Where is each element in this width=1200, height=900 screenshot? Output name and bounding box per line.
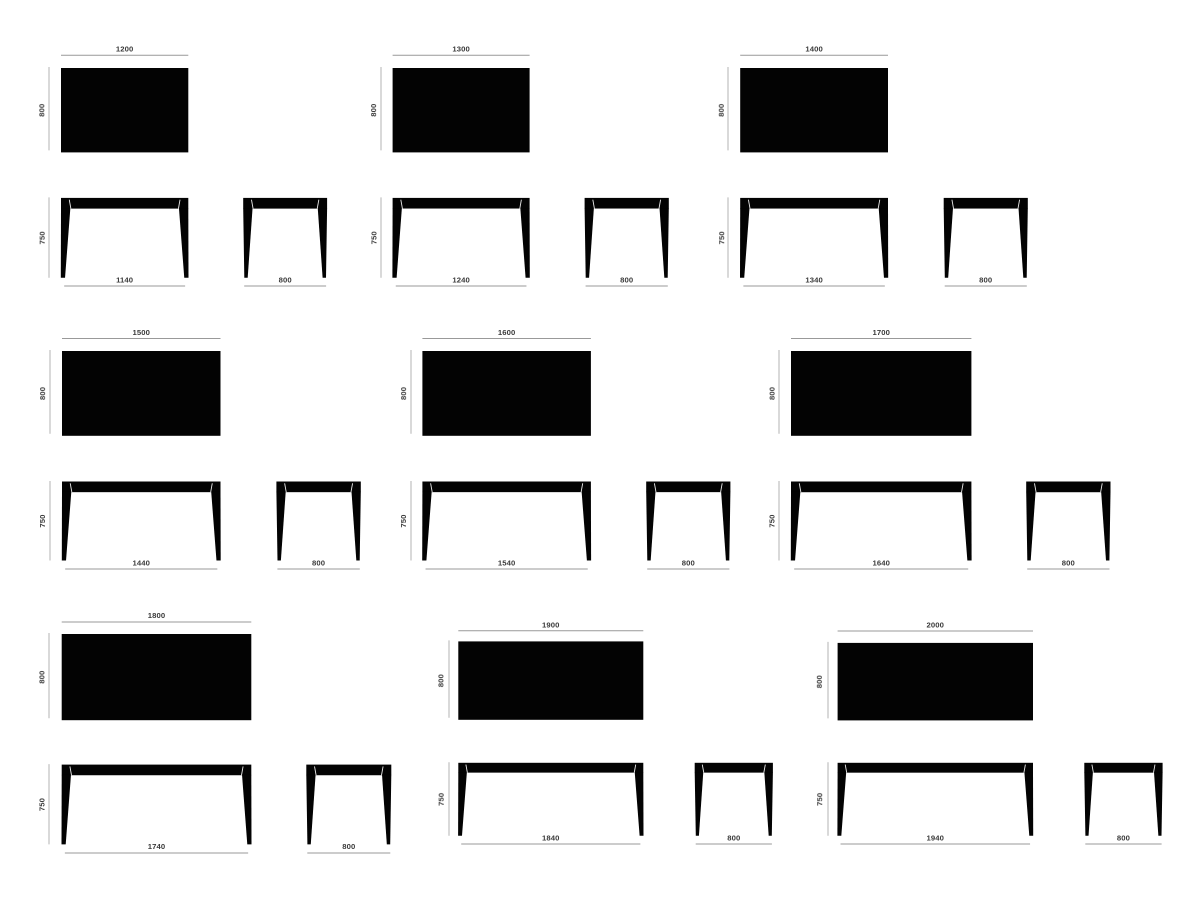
svg-text:1840: 1840 — [542, 834, 560, 843]
svg-text:1140: 1140 — [116, 275, 133, 284]
svg-text:1300: 1300 — [452, 44, 470, 53]
svg-text:1900: 1900 — [542, 620, 560, 629]
svg-text:1700: 1700 — [872, 328, 890, 337]
svg-text:1500: 1500 — [132, 328, 150, 337]
svg-text:1740: 1740 — [148, 842, 166, 851]
svg-text:800: 800 — [342, 842, 355, 851]
svg-text:750: 750 — [815, 793, 824, 806]
svg-text:1940: 1940 — [927, 834, 945, 843]
svg-text:750: 750 — [38, 231, 47, 244]
svg-text:800: 800 — [38, 104, 47, 117]
svg-text:800: 800 — [38, 387, 47, 400]
svg-text:1440: 1440 — [132, 559, 150, 568]
svg-text:800: 800 — [38, 671, 47, 684]
svg-text:750: 750 — [38, 514, 47, 527]
svg-text:800: 800 — [279, 275, 292, 284]
svg-text:750: 750 — [717, 231, 726, 244]
svg-text:1200: 1200 — [116, 44, 134, 53]
svg-text:800: 800 — [437, 674, 446, 687]
svg-text:750: 750 — [768, 514, 777, 527]
svg-text:1400: 1400 — [805, 44, 823, 53]
svg-text:800: 800 — [399, 387, 408, 400]
svg-text:1640: 1640 — [872, 559, 890, 568]
svg-text:1800: 1800 — [148, 611, 166, 620]
svg-text:1340: 1340 — [805, 275, 823, 284]
svg-text:800: 800 — [727, 834, 740, 843]
svg-text:1540: 1540 — [498, 559, 516, 568]
svg-text:800: 800 — [768, 387, 777, 400]
svg-text:800: 800 — [369, 104, 378, 117]
svg-text:800: 800 — [682, 559, 695, 568]
svg-text:750: 750 — [437, 793, 446, 806]
svg-text:800: 800 — [815, 675, 824, 688]
svg-text:800: 800 — [717, 104, 726, 117]
svg-text:750: 750 — [399, 514, 408, 527]
svg-text:2000: 2000 — [927, 620, 945, 629]
svg-text:800: 800 — [620, 275, 633, 284]
svg-text:800: 800 — [312, 559, 325, 568]
svg-text:800: 800 — [1062, 559, 1075, 568]
svg-text:800: 800 — [1117, 834, 1130, 843]
svg-text:800: 800 — [979, 275, 992, 284]
svg-text:750: 750 — [38, 798, 47, 811]
svg-text:1240: 1240 — [452, 275, 470, 284]
svg-text:750: 750 — [369, 231, 378, 244]
svg-text:1600: 1600 — [498, 328, 516, 337]
